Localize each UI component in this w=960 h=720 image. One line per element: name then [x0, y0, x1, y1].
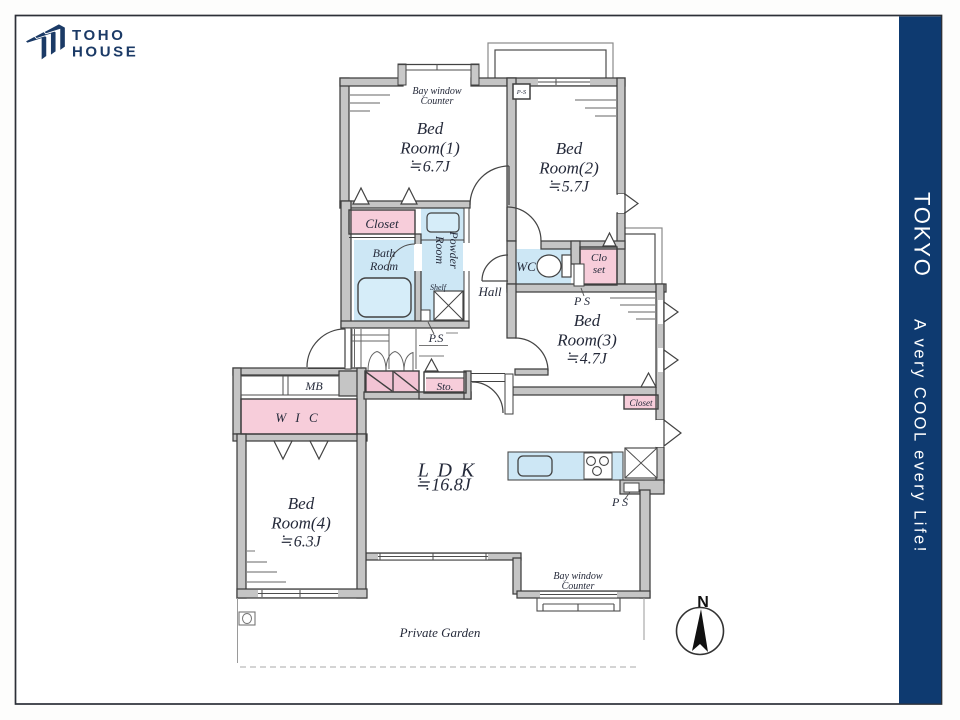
svg-text:HOUSE: HOUSE — [72, 44, 138, 61]
svg-text:Sto.: Sto. — [437, 381, 454, 393]
svg-text:Clo: Clo — [591, 252, 607, 264]
svg-text:4.7J: 4.7J — [580, 351, 608, 368]
svg-text:TOKYO: TOKYO — [910, 192, 935, 278]
svg-text:W I C: W I C — [275, 410, 320, 425]
svg-text:Bed: Bed — [288, 494, 315, 513]
svg-text:PowderRoom: PowderRoom — [433, 230, 461, 269]
svg-text:Counter: Counter — [562, 581, 595, 592]
svg-text:16.8J: 16.8J — [431, 475, 472, 495]
svg-text:N: N — [697, 594, 709, 611]
svg-text:5.7J: 5.7J — [562, 179, 590, 196]
svg-text:P S: P S — [573, 294, 590, 308]
svg-text:Room(2): Room(2) — [538, 159, 599, 178]
svg-text:P S: P S — [611, 495, 628, 509]
svg-text:Bed: Bed — [556, 139, 583, 158]
svg-text:Room(1): Room(1) — [399, 139, 460, 158]
svg-text:Closet: Closet — [629, 398, 653, 408]
svg-text:Bed: Bed — [417, 119, 444, 138]
svg-text:6.7J: 6.7J — [423, 159, 451, 176]
svg-text:WC: WC — [516, 259, 536, 274]
svg-text:Shelf: Shelf — [430, 283, 448, 292]
svg-text:Room: Room — [369, 259, 398, 273]
svg-text:Hall: Hall — [477, 284, 502, 299]
svg-text:P.S: P.S — [428, 331, 444, 345]
svg-text:P-S: P-S — [516, 89, 527, 96]
svg-text:Bath: Bath — [373, 246, 396, 260]
svg-text:Room(3): Room(3) — [556, 331, 617, 350]
svg-text:Closet: Closet — [365, 216, 399, 231]
svg-text:Bed: Bed — [574, 311, 601, 330]
svg-text:A very COOL every Life!: A very COOL every Life! — [911, 319, 929, 554]
svg-text:6.3J: 6.3J — [294, 534, 322, 551]
svg-text:MB: MB — [304, 379, 323, 393]
svg-text:Private Garden: Private Garden — [399, 625, 481, 640]
svg-text:Room(4): Room(4) — [270, 514, 331, 533]
svg-text:TOHO: TOHO — [72, 27, 125, 44]
svg-text:set: set — [593, 264, 606, 276]
svg-text:Counter: Counter — [421, 96, 454, 107]
